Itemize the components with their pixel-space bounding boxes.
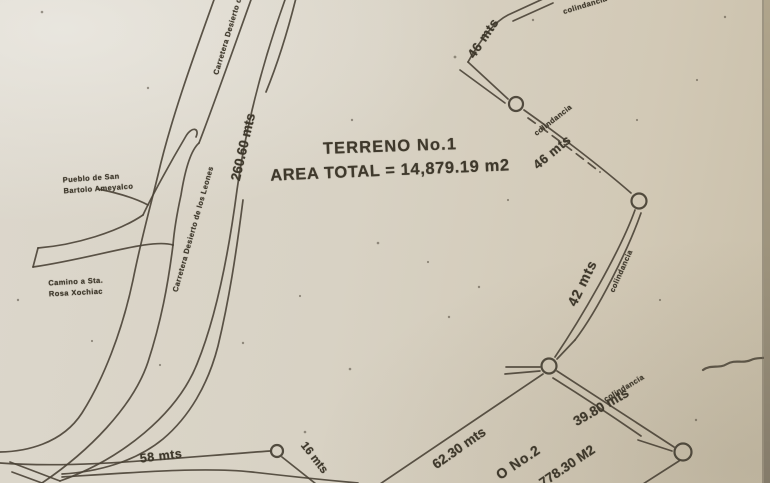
road-branch-upper [38, 215, 143, 248]
road-lines [0, 0, 358, 483]
road-branch-endcap [33, 248, 38, 267]
boundary-line [643, 461, 679, 483]
vertex-circle [632, 194, 647, 209]
boundary-line [555, 210, 635, 357]
vertex-circle [675, 444, 692, 461]
road-line [12, 472, 42, 483]
road-dimension-line [266, 0, 296, 92]
vertex-circle [509, 97, 523, 111]
vertex-circle [542, 359, 557, 374]
pen-scribble-mark [703, 357, 768, 370]
paper-edge-shadow [764, 0, 770, 483]
plan-drawing [0, 0, 770, 483]
survey-plan-photo: Carretera Desierto de 260.60 mts Carrete… [0, 0, 770, 483]
vertex-circle [271, 445, 283, 457]
boundary-line [557, 371, 674, 447]
road-branch-lower [33, 244, 173, 267]
boundary-line [513, 3, 553, 21]
road-line [0, 0, 215, 452]
boundary-line [0, 451, 270, 465]
camino-label: Camino a Sta. Rosa Xochiac [48, 275, 104, 300]
road-dimension-line [62, 200, 243, 474]
paper-specks [17, 11, 726, 434]
boundary-leader [505, 371, 540, 374]
